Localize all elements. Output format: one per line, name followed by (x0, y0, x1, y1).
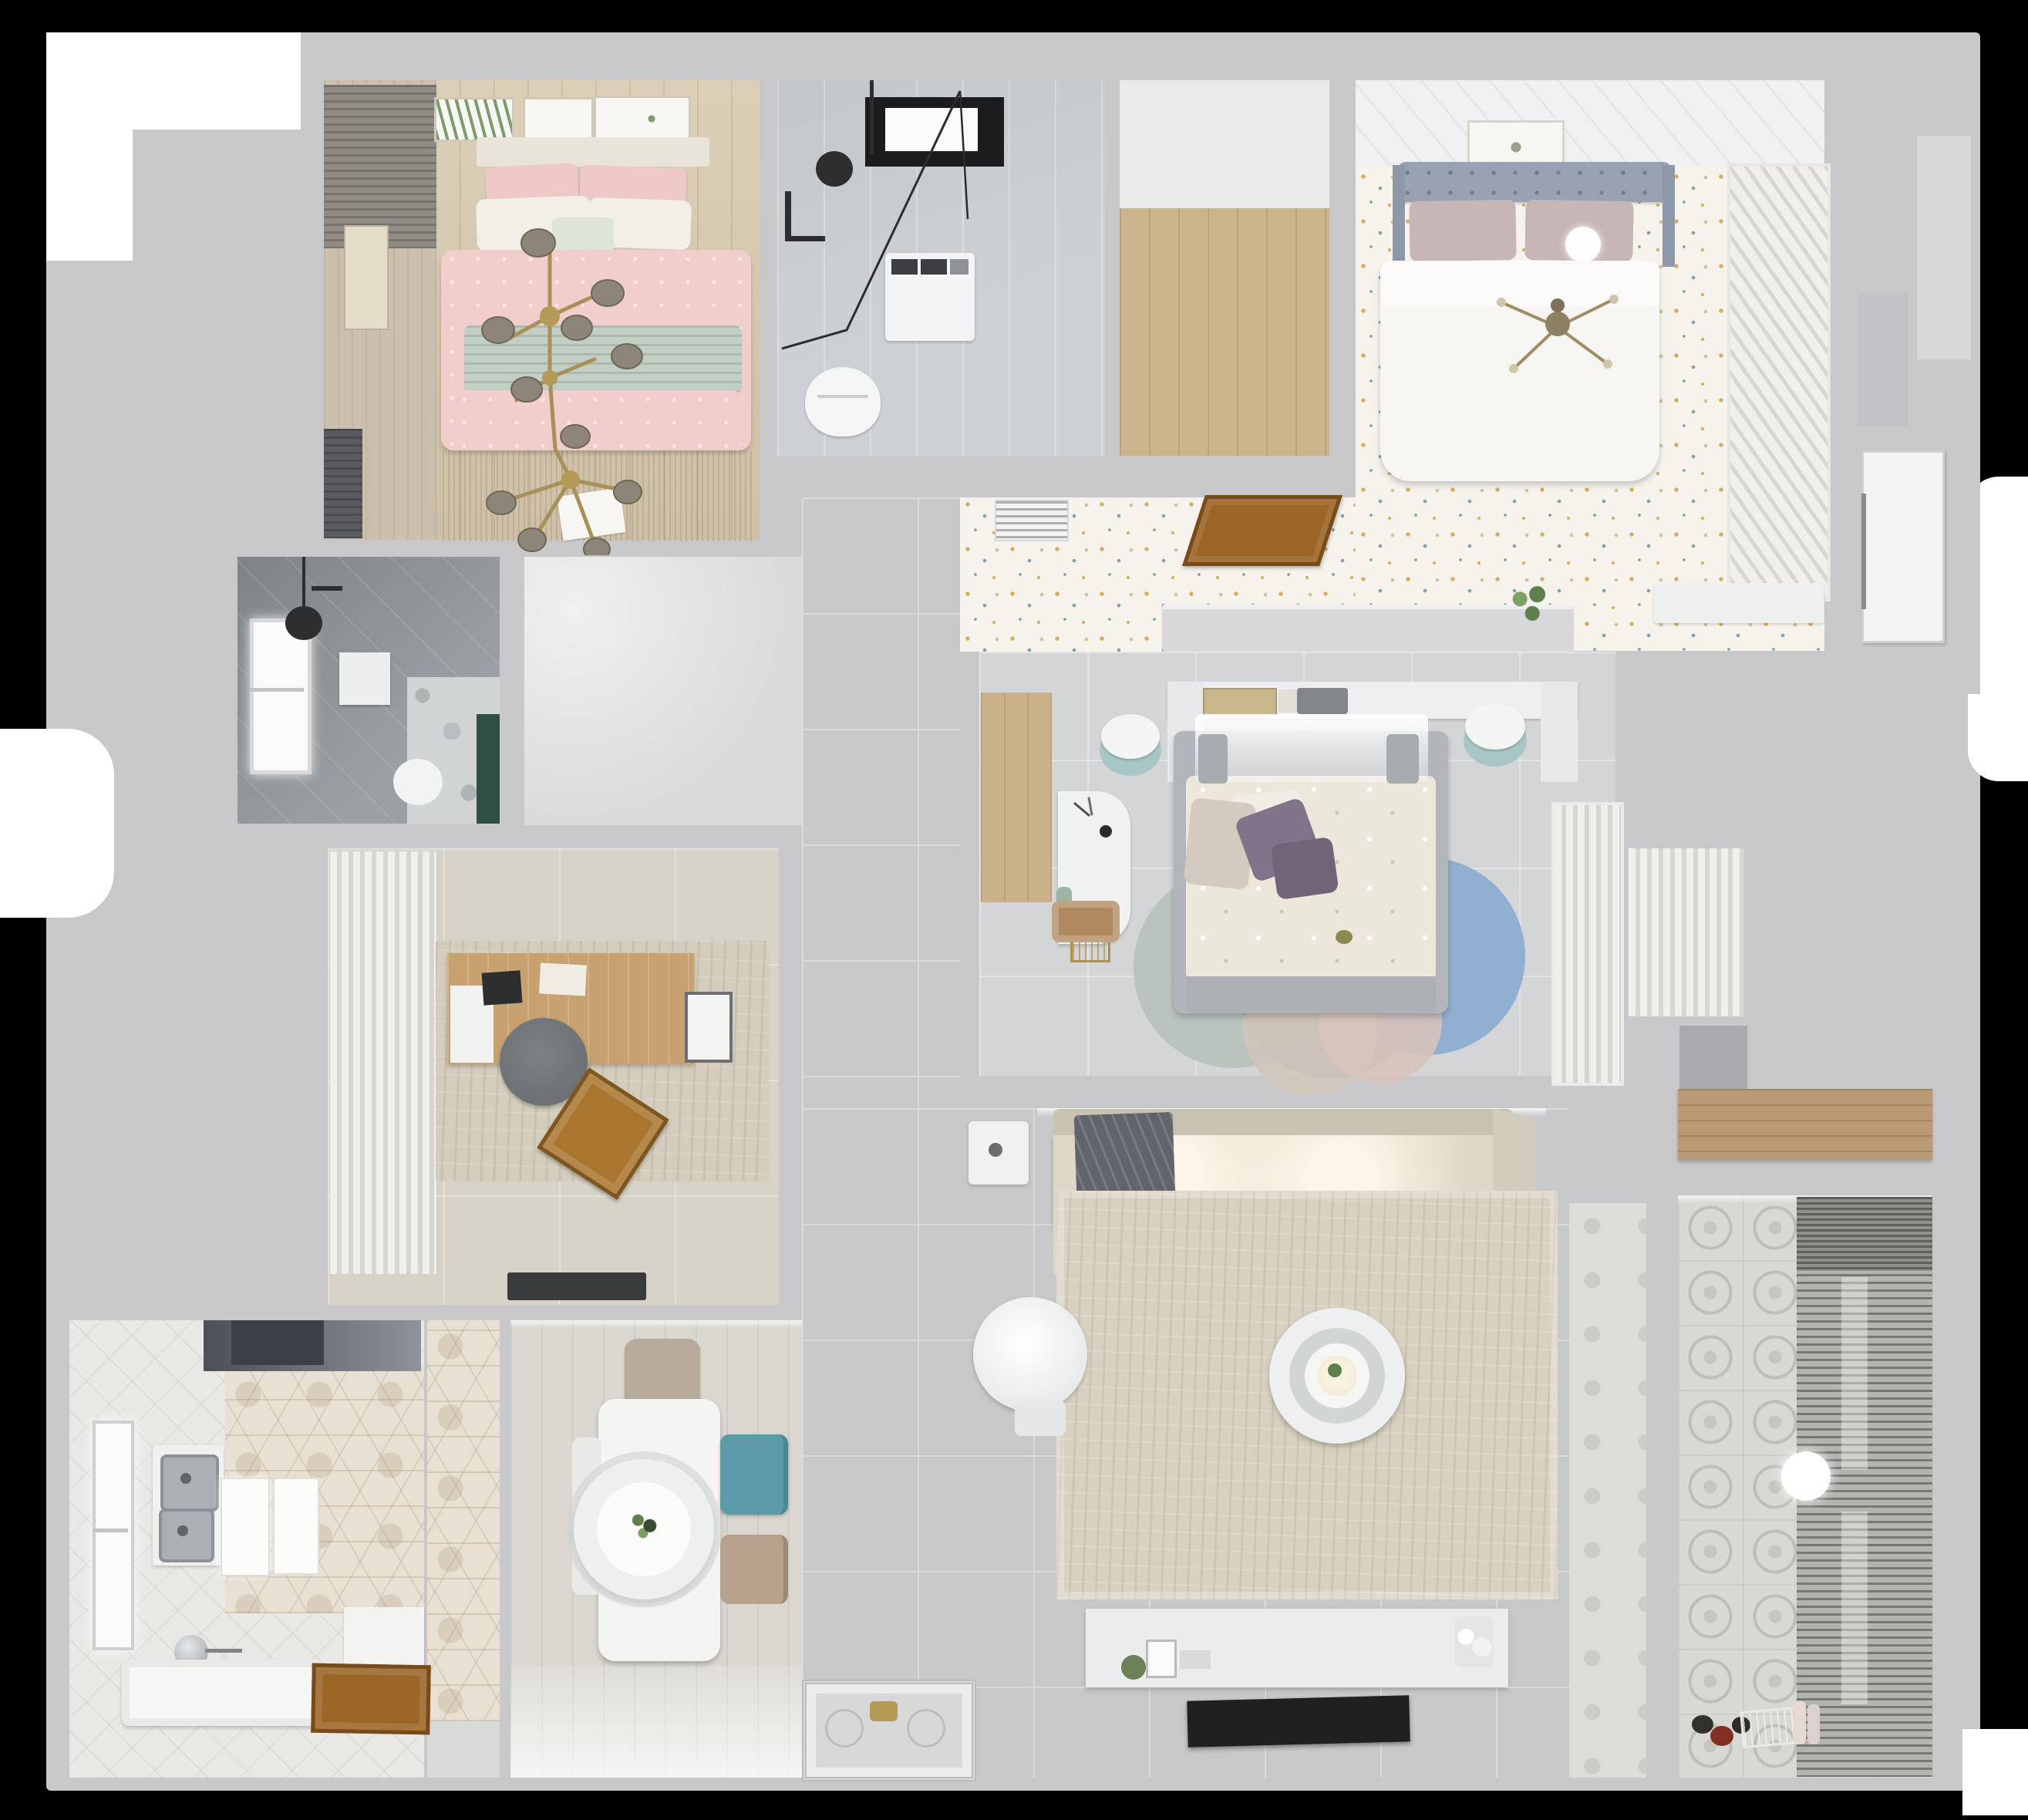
books-stack (1203, 688, 1277, 716)
headboard-shelf-leg (1541, 682, 1578, 782)
bottle (1794, 1701, 1806, 1744)
sheer-wardrobe (1551, 802, 1624, 1086)
pillow-purple-dark (1270, 837, 1339, 900)
hood-inner (231, 1320, 324, 1365)
leaning-art (344, 225, 389, 330)
wood-desk-chair (1052, 901, 1120, 942)
coffee-table-plant (1328, 1363, 1342, 1377)
stool-nightstand-top (1101, 714, 1160, 759)
ceiling-panel-band (1356, 80, 1824, 167)
green-accent-strip (477, 714, 500, 824)
drying-rack-small (1740, 1707, 1801, 1748)
steel-sink (159, 1508, 214, 1562)
door-hinge-line (1861, 494, 1866, 609)
wall-cabinet (339, 652, 390, 705)
hex-tile-wall-strip (427, 1320, 500, 1721)
wall-frame-sprig (594, 96, 691, 142)
balcony-threshold-strip (1569, 1203, 1646, 1778)
side-chair-base (1015, 1400, 1066, 1436)
monitor-board (685, 992, 733, 1063)
open-wood-door (1182, 495, 1342, 566)
floor-toy-red (1710, 1726, 1733, 1746)
plant-on-half-wall (1505, 580, 1555, 628)
blinds-window-slit (1841, 1277, 1868, 1470)
round-side-chair (973, 1297, 1087, 1411)
open-wood-door-flat (311, 1663, 431, 1735)
closet-wood-floor (1120, 208, 1329, 456)
hex-strip-bottom-light (427, 1721, 500, 1778)
louvered-wardrobe (1727, 163, 1831, 602)
chair-beige (720, 1535, 788, 1604)
corridor-floor (802, 497, 960, 1108)
shower-head (816, 151, 853, 187)
louver-shutter (324, 429, 362, 538)
faucet-spout (205, 1649, 242, 1653)
wall-niche-block (1858, 293, 1908, 426)
shower-bar (312, 586, 342, 591)
cross-chandelier (1492, 276, 1623, 380)
toilet (393, 759, 443, 805)
sink-drain (177, 1525, 188, 1536)
mat-scroll-motif (907, 1709, 945, 1748)
render-artifact-white-patch (46, 32, 301, 130)
console-frames (1146, 1640, 1177, 1678)
console-stack (1180, 1650, 1211, 1669)
wall-frame (523, 97, 594, 140)
stool-nightstand-top (1465, 703, 1525, 750)
console-vases (1454, 1616, 1493, 1667)
wood-floor-strip (981, 693, 1052, 902)
mat-gold-emblem (870, 1701, 898, 1721)
shower-arm (870, 80, 874, 154)
shower-arm (302, 557, 305, 611)
washing-machine-panel (921, 259, 947, 275)
sphere-lamp-on-bed (1565, 227, 1601, 262)
washing-machine-panel (950, 259, 969, 275)
shower-head (285, 606, 322, 640)
window-mullion (250, 688, 304, 692)
pendant-plant-center (626, 1505, 660, 1542)
canopy-drape (1386, 734, 1419, 784)
toilet (805, 367, 881, 436)
niche-wood-counter (1678, 1089, 1932, 1160)
steel-sink (160, 1454, 219, 1512)
hall-nook-floor (524, 557, 802, 825)
bottle (1807, 1704, 1820, 1744)
white-panel (273, 1478, 319, 1575)
render-artifact-white-patch (46, 130, 133, 261)
niche-gray-cabinet (1679, 1026, 1747, 1089)
bed-side-rail (1393, 165, 1405, 267)
ac-vent-grille (995, 500, 1069, 541)
shower-bar (785, 236, 825, 241)
laptop-dark (482, 970, 523, 1005)
pleated-curtain-wardrobe (330, 851, 436, 1274)
window (250, 618, 312, 774)
laptop-on-shelf (1297, 688, 1348, 714)
render-artifact-white-patch (0, 729, 114, 918)
render-artifact-white-patch (1962, 1729, 2028, 1815)
wall-highlight (510, 1320, 802, 1328)
console-plant (1121, 1655, 1146, 1680)
window (93, 1421, 134, 1650)
gold-branch-chandelier (461, 224, 654, 555)
sink-drain (180, 1473, 191, 1484)
desk-papers (539, 962, 587, 996)
floorplan-canvas (0, 0, 2028, 1820)
curtain-gray (324, 85, 436, 248)
chair-teal (720, 1434, 788, 1515)
gold-sprig-on-duvet (1336, 930, 1353, 944)
chair-gray-top (625, 1339, 700, 1402)
window-mullion (93, 1528, 128, 1532)
wall-tv (1187, 1695, 1410, 1748)
shower-bar (785, 191, 791, 238)
bright-wall-panel (1917, 136, 1971, 359)
desk-black-dot (1100, 825, 1112, 838)
white-panel (221, 1478, 270, 1576)
dark-doormat (507, 1272, 646, 1300)
bed-foot-band (1186, 976, 1436, 1013)
cup-on-side-table (989, 1143, 1002, 1157)
floor-toy (1692, 1715, 1713, 1734)
headboard-tufted (1398, 162, 1671, 202)
bed-headboard-panel (477, 137, 709, 167)
blinds-window-slit (1841, 1512, 1868, 1704)
blinds-dense-top (1797, 1197, 1932, 1271)
white-sphere-lamp (1781, 1451, 1831, 1501)
wall-frame-green-art (434, 97, 514, 142)
canopy-drape (1198, 734, 1228, 784)
washing-machine-panel (891, 259, 918, 275)
toilet-lid-line (817, 395, 868, 398)
bench-block (344, 1607, 424, 1666)
bed-side-rail (1662, 165, 1675, 267)
closet-upper-wall (1120, 80, 1329, 208)
pleated-closet (1629, 848, 1744, 1016)
freestanding-tub (122, 1660, 324, 1726)
mat-scroll-motif (825, 1709, 864, 1748)
white-entry-door (1861, 450, 1945, 643)
white-bench (1654, 583, 1824, 623)
dining-bright-wash (510, 1666, 802, 1778)
pillow-mauve (1409, 200, 1516, 261)
